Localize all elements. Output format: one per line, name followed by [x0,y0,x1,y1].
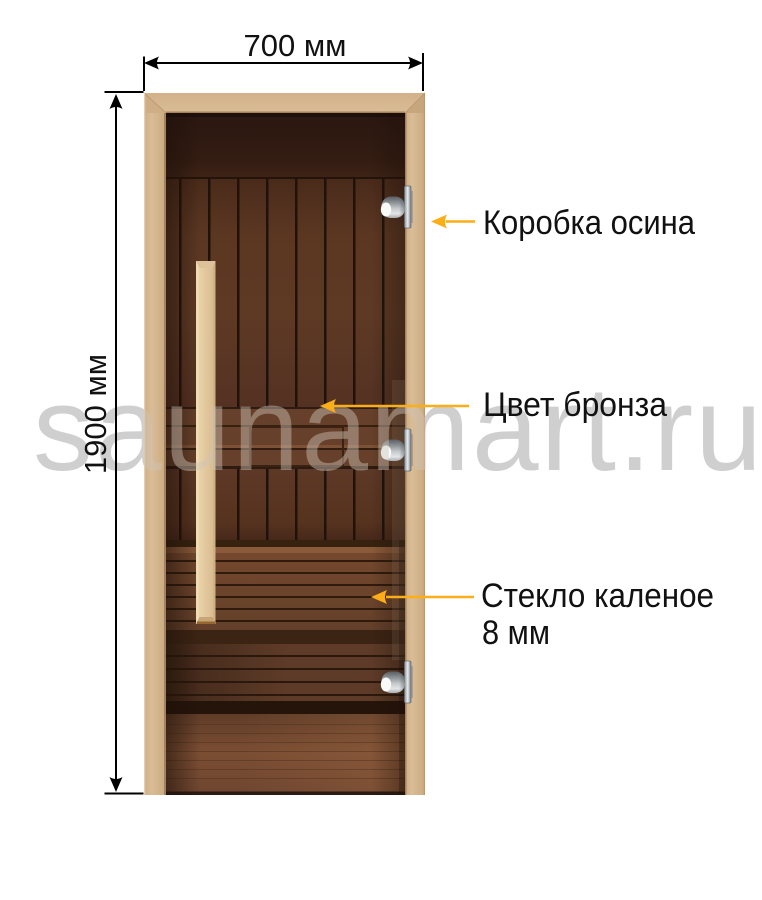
svg-text:Стекло каленое: Стекло каленое [481,577,714,615]
svg-text:8 мм: 8 мм [482,614,550,652]
svg-text:Коробка осина: Коробка осина [483,204,695,242]
svg-text:Цвет бронза: Цвет бронза [483,386,667,424]
svg-text:1900 мм: 1900 мм [78,354,113,474]
svg-text:700 мм: 700 мм [244,28,347,63]
